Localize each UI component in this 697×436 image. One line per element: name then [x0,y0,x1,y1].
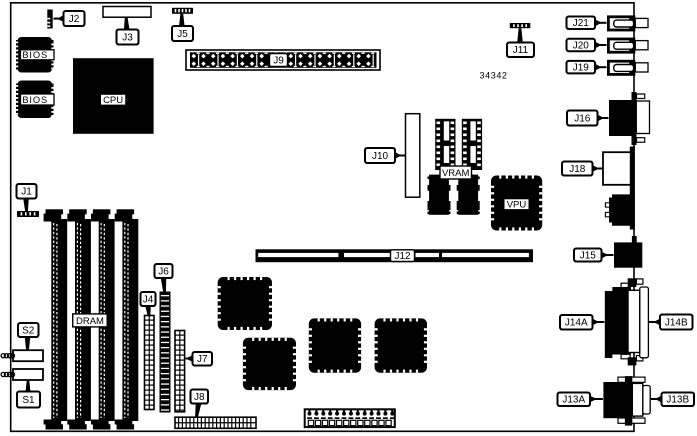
svg-text:VRAM: VRAM [442,168,470,179]
svg-text:J20: J20 [573,40,590,51]
svg-text:BIOS: BIOS [22,95,48,105]
svg-text:J14A: J14A [565,318,588,329]
svg-text:J6: J6 [158,266,169,277]
svg-text:J19: J19 [573,63,590,74]
svg-text:J14B: J14B [665,317,688,328]
svg-text:J21: J21 [573,18,590,29]
svg-text:CPU: CPU [103,95,123,106]
svg-text:J11: J11 [513,45,529,56]
svg-text:J16: J16 [574,113,591,124]
svg-text:J15: J15 [580,250,597,261]
svg-text:J10: J10 [372,151,389,162]
svg-text:J5: J5 [177,29,188,40]
svg-text:DRAM: DRAM [76,316,104,327]
svg-text:34342: 34342 [480,71,508,81]
svg-text:BIOS: BIOS [22,50,48,60]
svg-text:J4: J4 [143,294,154,305]
svg-text:S2: S2 [22,325,35,336]
svg-text:J8: J8 [194,392,205,403]
svg-text:J7: J7 [197,354,208,365]
svg-text:J1: J1 [21,187,32,198]
svg-text:J2: J2 [69,14,80,25]
svg-text:S1: S1 [22,395,35,406]
svg-text:J9: J9 [273,55,284,66]
svg-text:VPU: VPU [507,199,527,210]
svg-text:J3: J3 [122,32,133,43]
svg-text:J18: J18 [569,164,586,175]
svg-text:J13B: J13B [666,395,689,406]
svg-text:J13A: J13A [562,395,585,406]
svg-text:J12: J12 [394,251,411,262]
